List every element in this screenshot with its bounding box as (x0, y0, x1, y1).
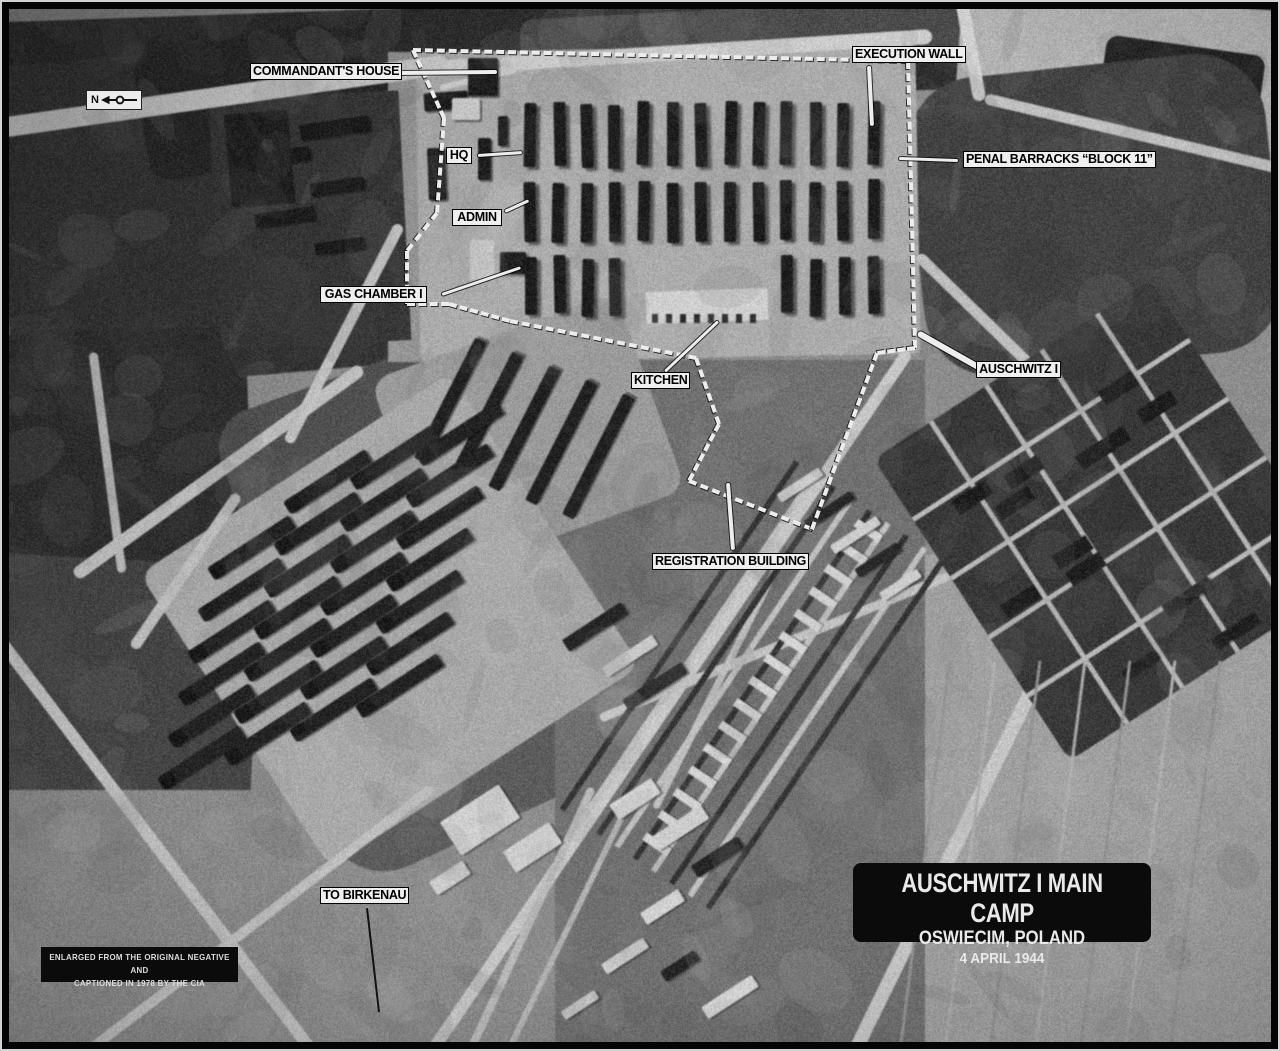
label-to-birkenau: TO BIRKENAU (320, 887, 409, 904)
north-letter: N (91, 95, 99, 106)
credit-line-2: CAPTIONED IN 1978 BY THE CIA (48, 977, 231, 990)
title-line-3: 4 APRIL 1944 (868, 950, 1136, 968)
credit-line-1: ENLARGED FROM THE ORIGINAL NEGATIVE AND (48, 951, 231, 977)
label-gas-chamber-1: GAS CHAMBER I (320, 286, 427, 303)
label-kitchen: KITCHEN (631, 372, 690, 389)
label-admin: ADMIN (452, 209, 502, 226)
title-line-1: AUSCHWITZ I MAIN CAMP (880, 868, 1124, 928)
label-auschwitz-1: AUSCHWITZ I (976, 361, 1061, 378)
label-hq: HQ (446, 147, 472, 164)
title-line-2: OSWIECIM, POLAND (871, 928, 1133, 950)
aerial-photograph: COMMANDANT'S HOUSE EXECUTION WALL HQ ADM… (0, 0, 1280, 1051)
label-execution-wall: EXECUTION WALL (852, 46, 966, 63)
credit-caption: ENLARGED FROM THE ORIGINAL NEGATIVE AND … (41, 947, 238, 982)
north-arrow-icon (101, 94, 137, 106)
label-penal-barracks-block-11: PENAL BARRACKS “BLOCK 11” (963, 151, 1156, 168)
title-box: AUSCHWITZ I MAIN CAMP OSWIECIM, POLAND 4… (853, 863, 1151, 942)
reconnaissance-photo-page: COMMANDANT'S HOUSE EXECUTION WALL HQ ADM… (0, 0, 1280, 1051)
label-commandants-house: COMMANDANT'S HOUSE (250, 63, 402, 80)
north-arrow: N (86, 90, 142, 110)
label-registration-building: REGISTRATION BUILDING (652, 553, 809, 570)
